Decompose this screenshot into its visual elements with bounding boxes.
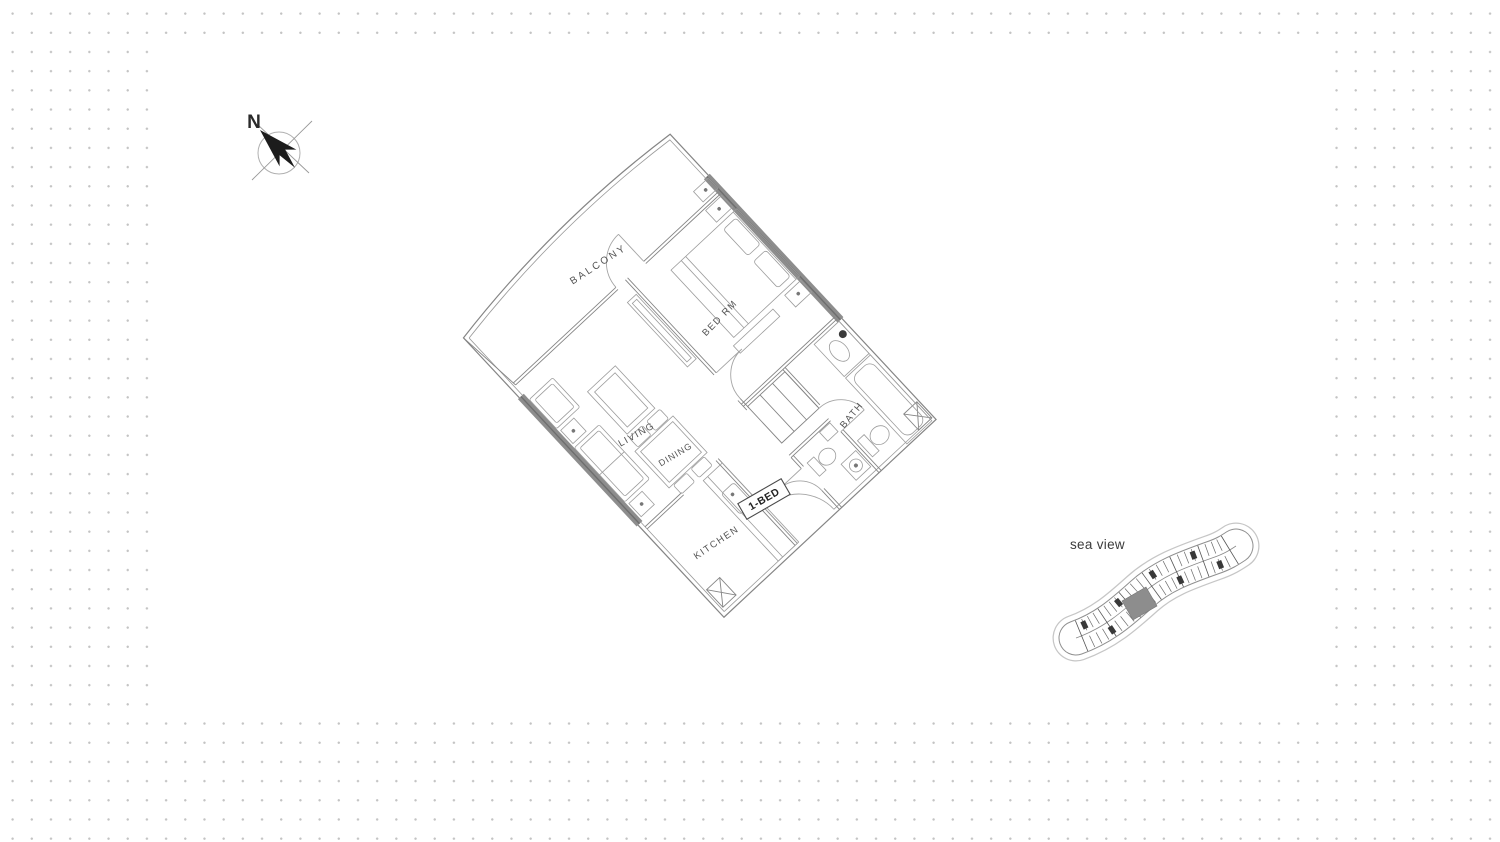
north-label: N	[247, 112, 261, 133]
apartment-plan	[454, 130, 936, 617]
north-arrow: N	[247, 112, 312, 180]
key-plan: sea view	[1070, 536, 1238, 651]
floorplan-sheet: { "compass": { "label": "N" }, "floor_pl…	[0, 0, 1500, 842]
floor-plan-drawing: BALCONY BED RM LIVING DINING KITCHEN BAT…	[0, 0, 1500, 842]
outer-wall	[454, 130, 936, 617]
sea-view-caption: sea view	[1070, 537, 1125, 552]
